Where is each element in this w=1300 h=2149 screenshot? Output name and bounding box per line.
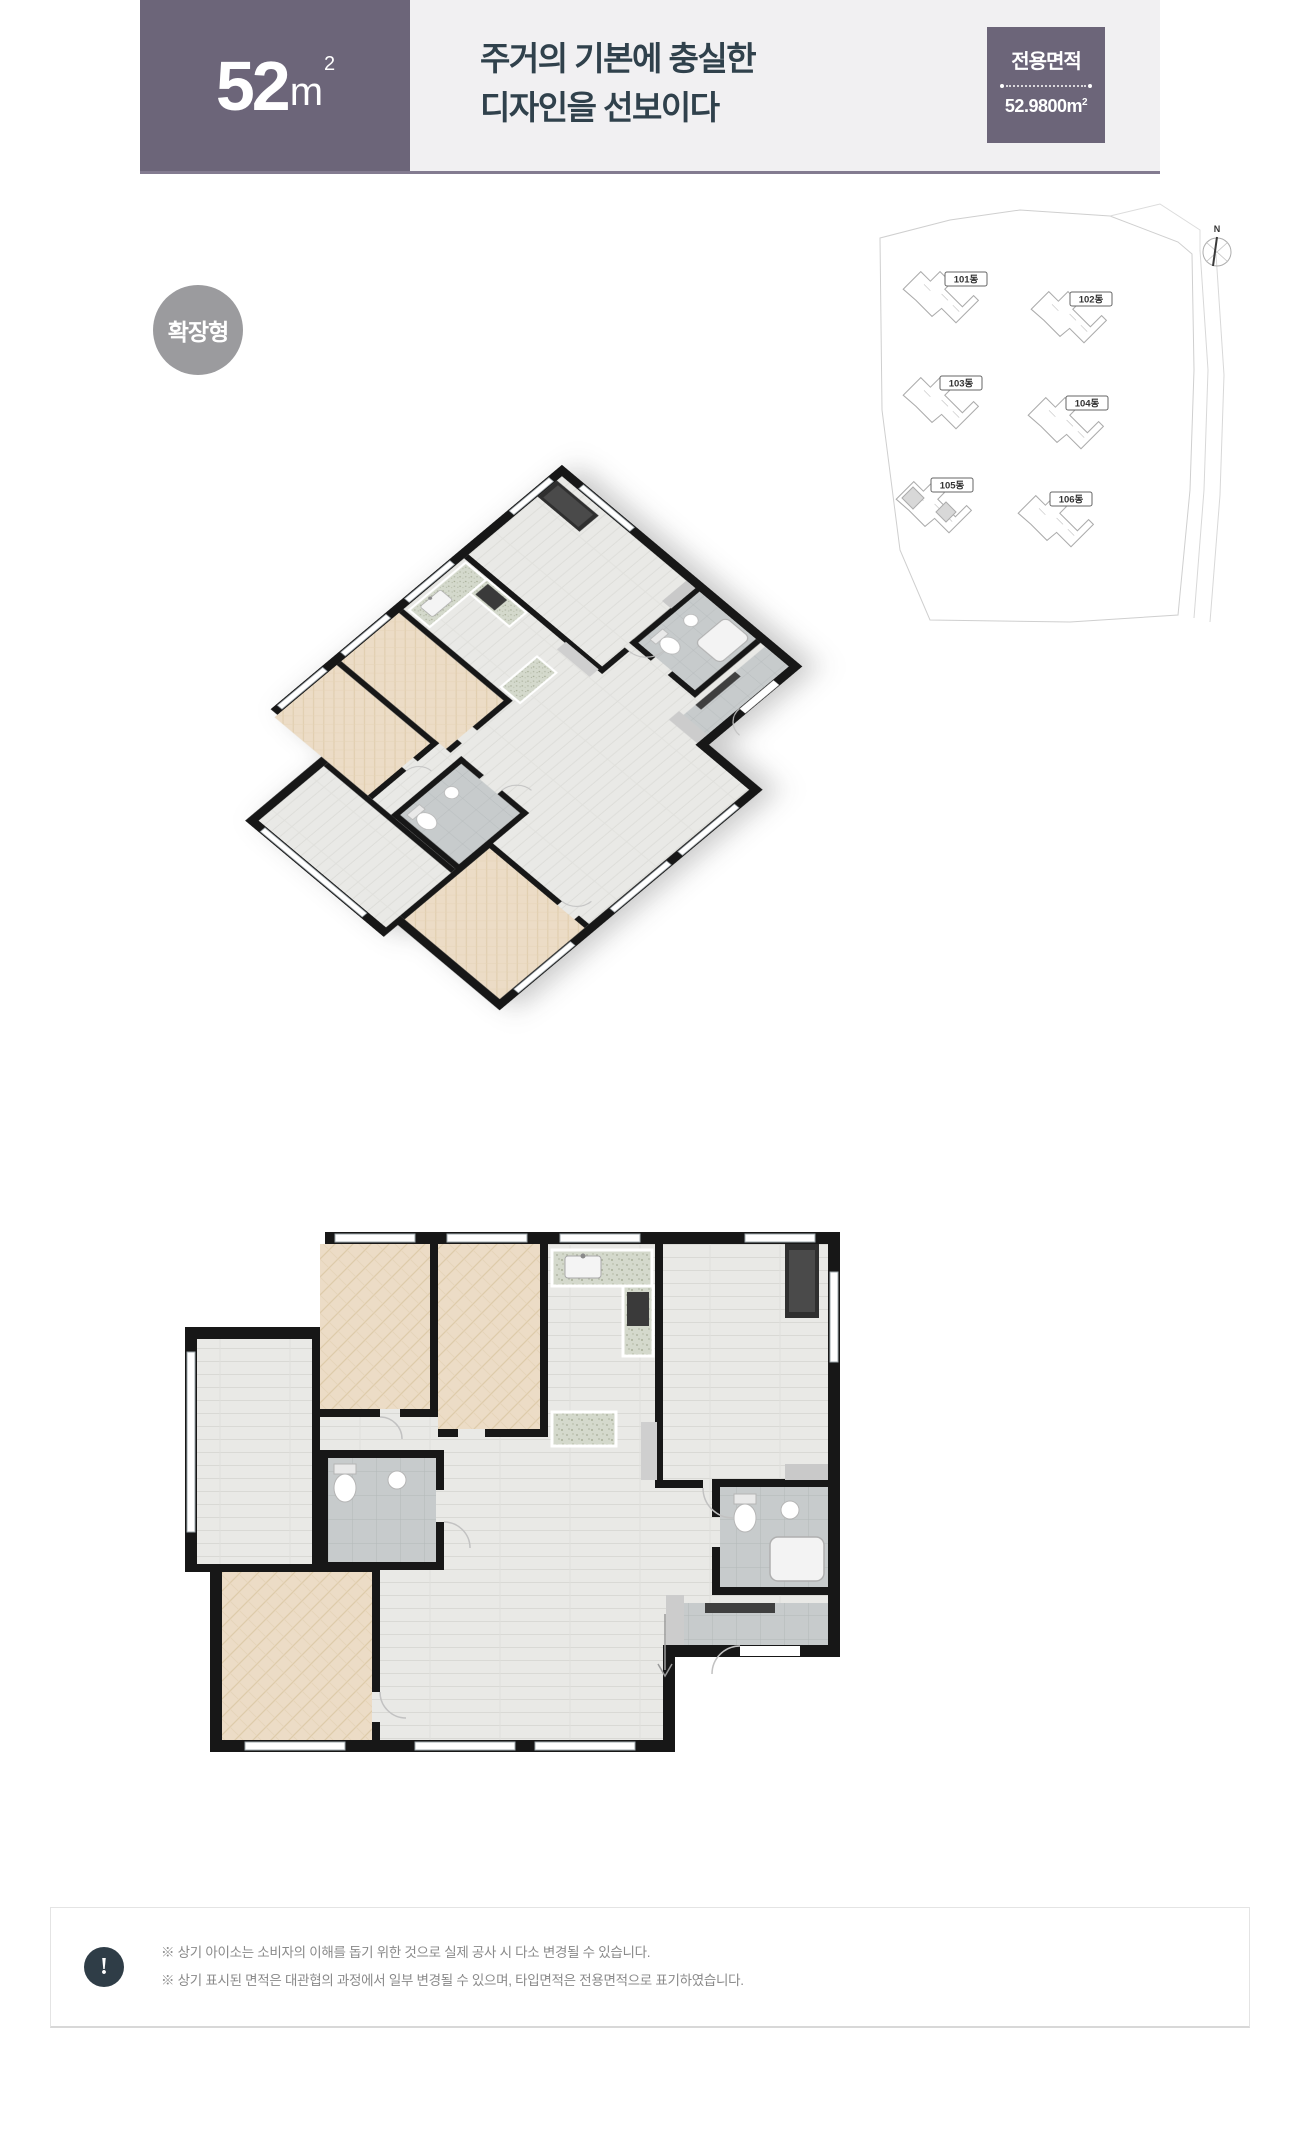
- exclusive-area-value: 52.9800m2: [987, 96, 1105, 117]
- svg-text:103동: 103동: [949, 379, 974, 390]
- isometric-floor-plan-drawing: [191, 458, 864, 1023]
- type-size-number: 52: [216, 51, 288, 121]
- disclaimer-line-1: ※ 상기 아이소는 소비자의 이해를 돕기 위한 것으로 실제 공사 시 다소 …: [161, 1939, 744, 1967]
- svg-text:106동: 106동: [1059, 495, 1084, 506]
- svg-text:101동: 101동: [954, 275, 979, 286]
- exclamation-icon: !: [84, 1947, 124, 1987]
- building-label-101: 101동: [945, 272, 987, 286]
- building-label-104: 104동: [1066, 396, 1108, 410]
- building-label-105: 105동: [931, 478, 973, 492]
- page-title: 주거의 기본에 충실한 디자인을 선보이다: [480, 34, 755, 132]
- disclaimer-texts: ※ 상기 아이소는 소비자의 이해를 돕기 위한 것으로 실제 공사 시 다소 …: [161, 1939, 744, 1995]
- isometric-floor-plan: [193, 395, 863, 1085]
- site-road-lines: [1194, 250, 1224, 622]
- header: 52 m2 주거의 기본에 충실한 디자인을 선보이다 전용면적 52.9800…: [140, 0, 1160, 174]
- disclaimer-line-2: ※ 상기 표시된 면적은 대관협의 과정에서 일부 변경될 수 있으며, 타입면…: [161, 1967, 744, 1995]
- disclaimer-box: ! ※ 상기 아이소는 소비자의 이해를 돕기 위한 것으로 실제 공사 시 다…: [50, 1907, 1250, 2028]
- building-label-102: 102동: [1070, 292, 1112, 306]
- type-size-box: 52 m2: [140, 0, 410, 171]
- svg-text:102동: 102동: [1079, 295, 1104, 306]
- flat-floor-plan: [185, 1232, 855, 1752]
- building-label-106: 106동: [1050, 492, 1092, 506]
- entry-direction-arrow: [653, 1612, 677, 1684]
- svg-text:105동: 105동: [940, 481, 965, 492]
- type-size-unit: m2: [290, 72, 334, 112]
- svg-text:104동: 104동: [1075, 399, 1100, 410]
- page-title-line1: 주거의 기본에 충실한: [480, 34, 755, 83]
- north-compass-icon: N: [1203, 224, 1231, 266]
- expansion-type-badge[interactable]: 확장형: [153, 285, 243, 375]
- svg-text:N: N: [1214, 224, 1221, 234]
- building-label-103: 103동: [940, 376, 982, 390]
- site-plan: 101동 102동 103동 104동 105동 106동 N: [860, 190, 1260, 630]
- dotted-divider: [1000, 84, 1092, 88]
- exclusive-area-box: 전용면적 52.9800m2: [987, 27, 1105, 143]
- page-title-line2: 디자인을 선보이다: [480, 83, 755, 132]
- exclusive-area-label: 전용면적: [987, 45, 1105, 74]
